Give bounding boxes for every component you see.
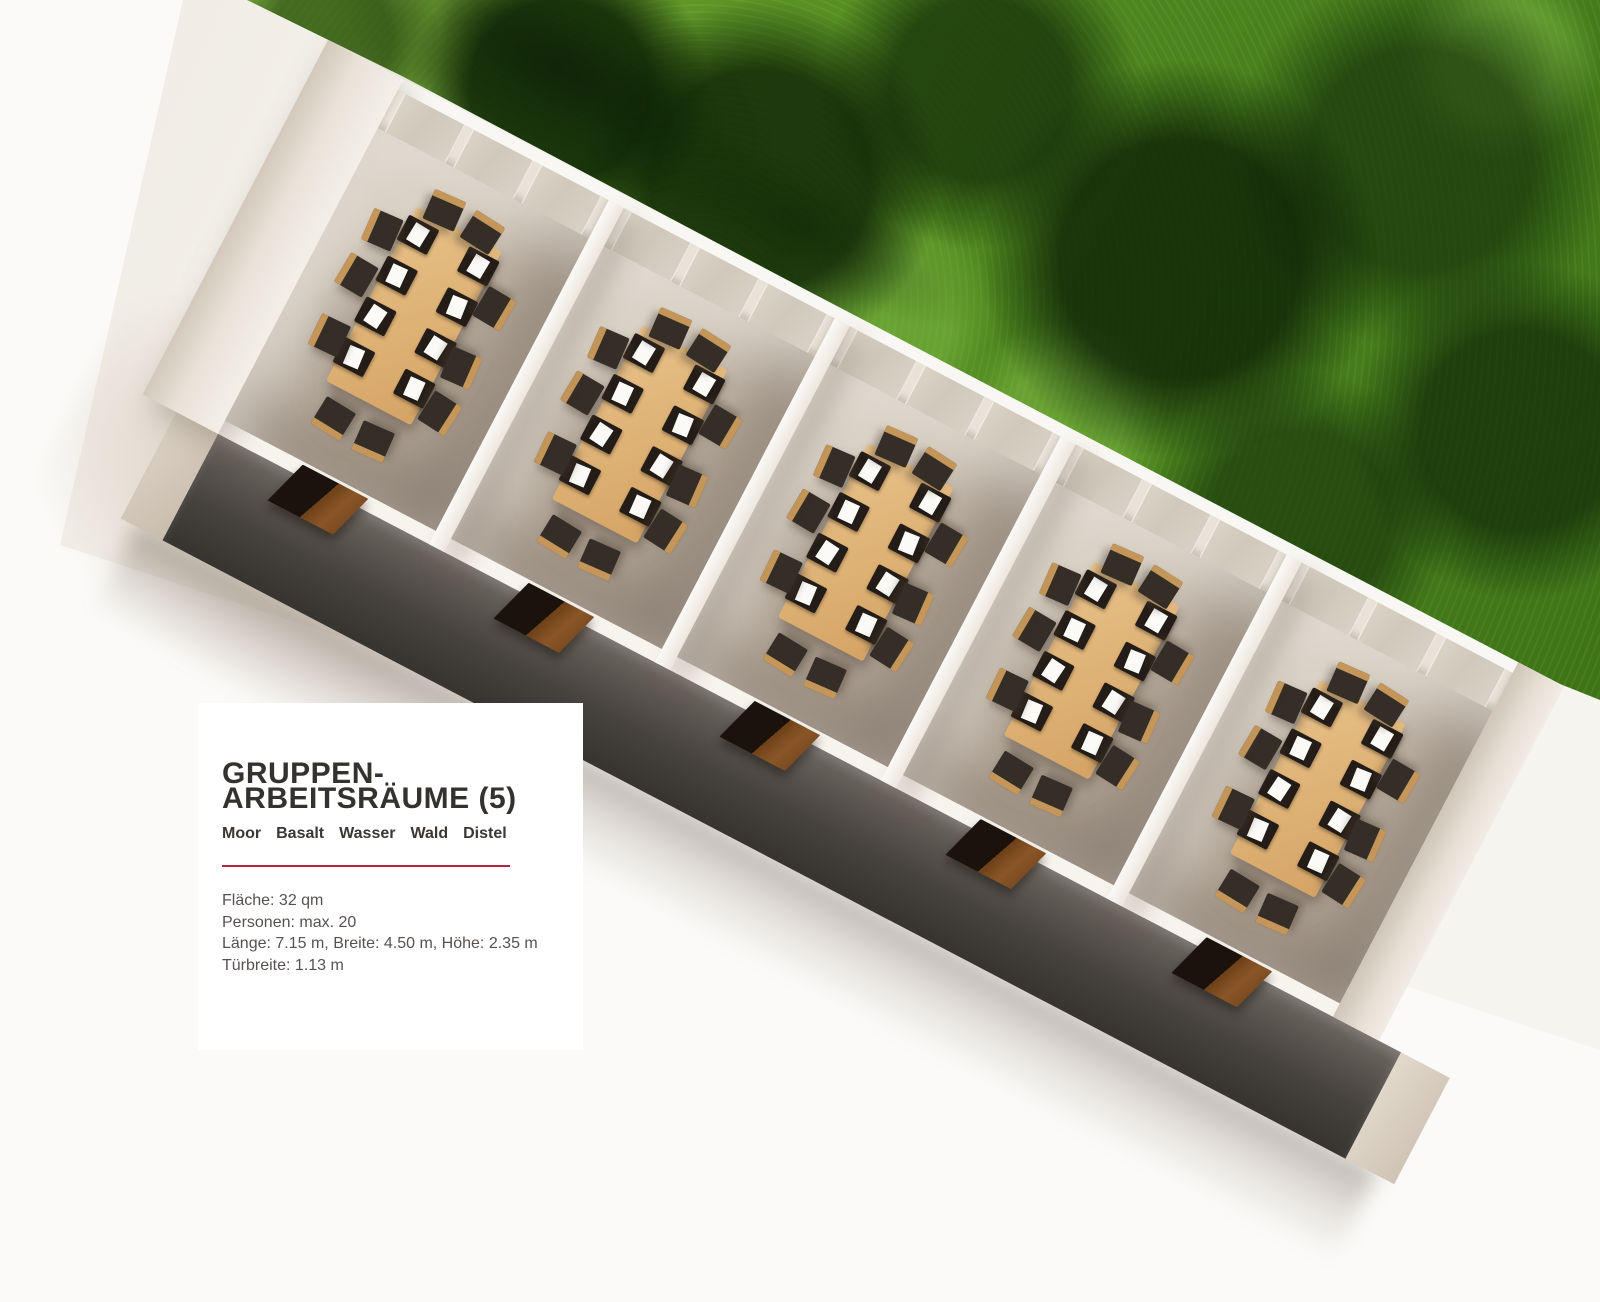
detail-line: Länge: 7.15 m, Breite: 4.50 m, Höhe: 2.3…	[222, 933, 583, 955]
accent-rule	[222, 865, 510, 867]
room-name: Wasser	[339, 825, 395, 843]
room-name: Wald	[410, 825, 448, 843]
room-name-list: MoorBasaltWasserWaldDistel	[222, 825, 583, 843]
room-name: Distel	[463, 825, 507, 843]
detail-line: Personen: max. 20	[222, 912, 583, 934]
info-panel: GRUPPEN-ARBEITSRÄUME (5) MoorBasaltWasse…	[198, 703, 583, 1050]
room-name: Basalt	[276, 825, 324, 843]
title-line-2: ARBEITSRÄUME (5)	[222, 782, 517, 815]
detail-line: Türbreite: 1.13 m	[222, 955, 583, 977]
room-name: Moor	[222, 825, 261, 843]
room-details: Fläche: 32 qmPersonen: max. 20Länge: 7.1…	[222, 890, 583, 976]
page-title: GRUPPEN-ARBEITSRÄUME (5)	[222, 761, 583, 811]
detail-line: Fläche: 32 qm	[222, 890, 583, 912]
